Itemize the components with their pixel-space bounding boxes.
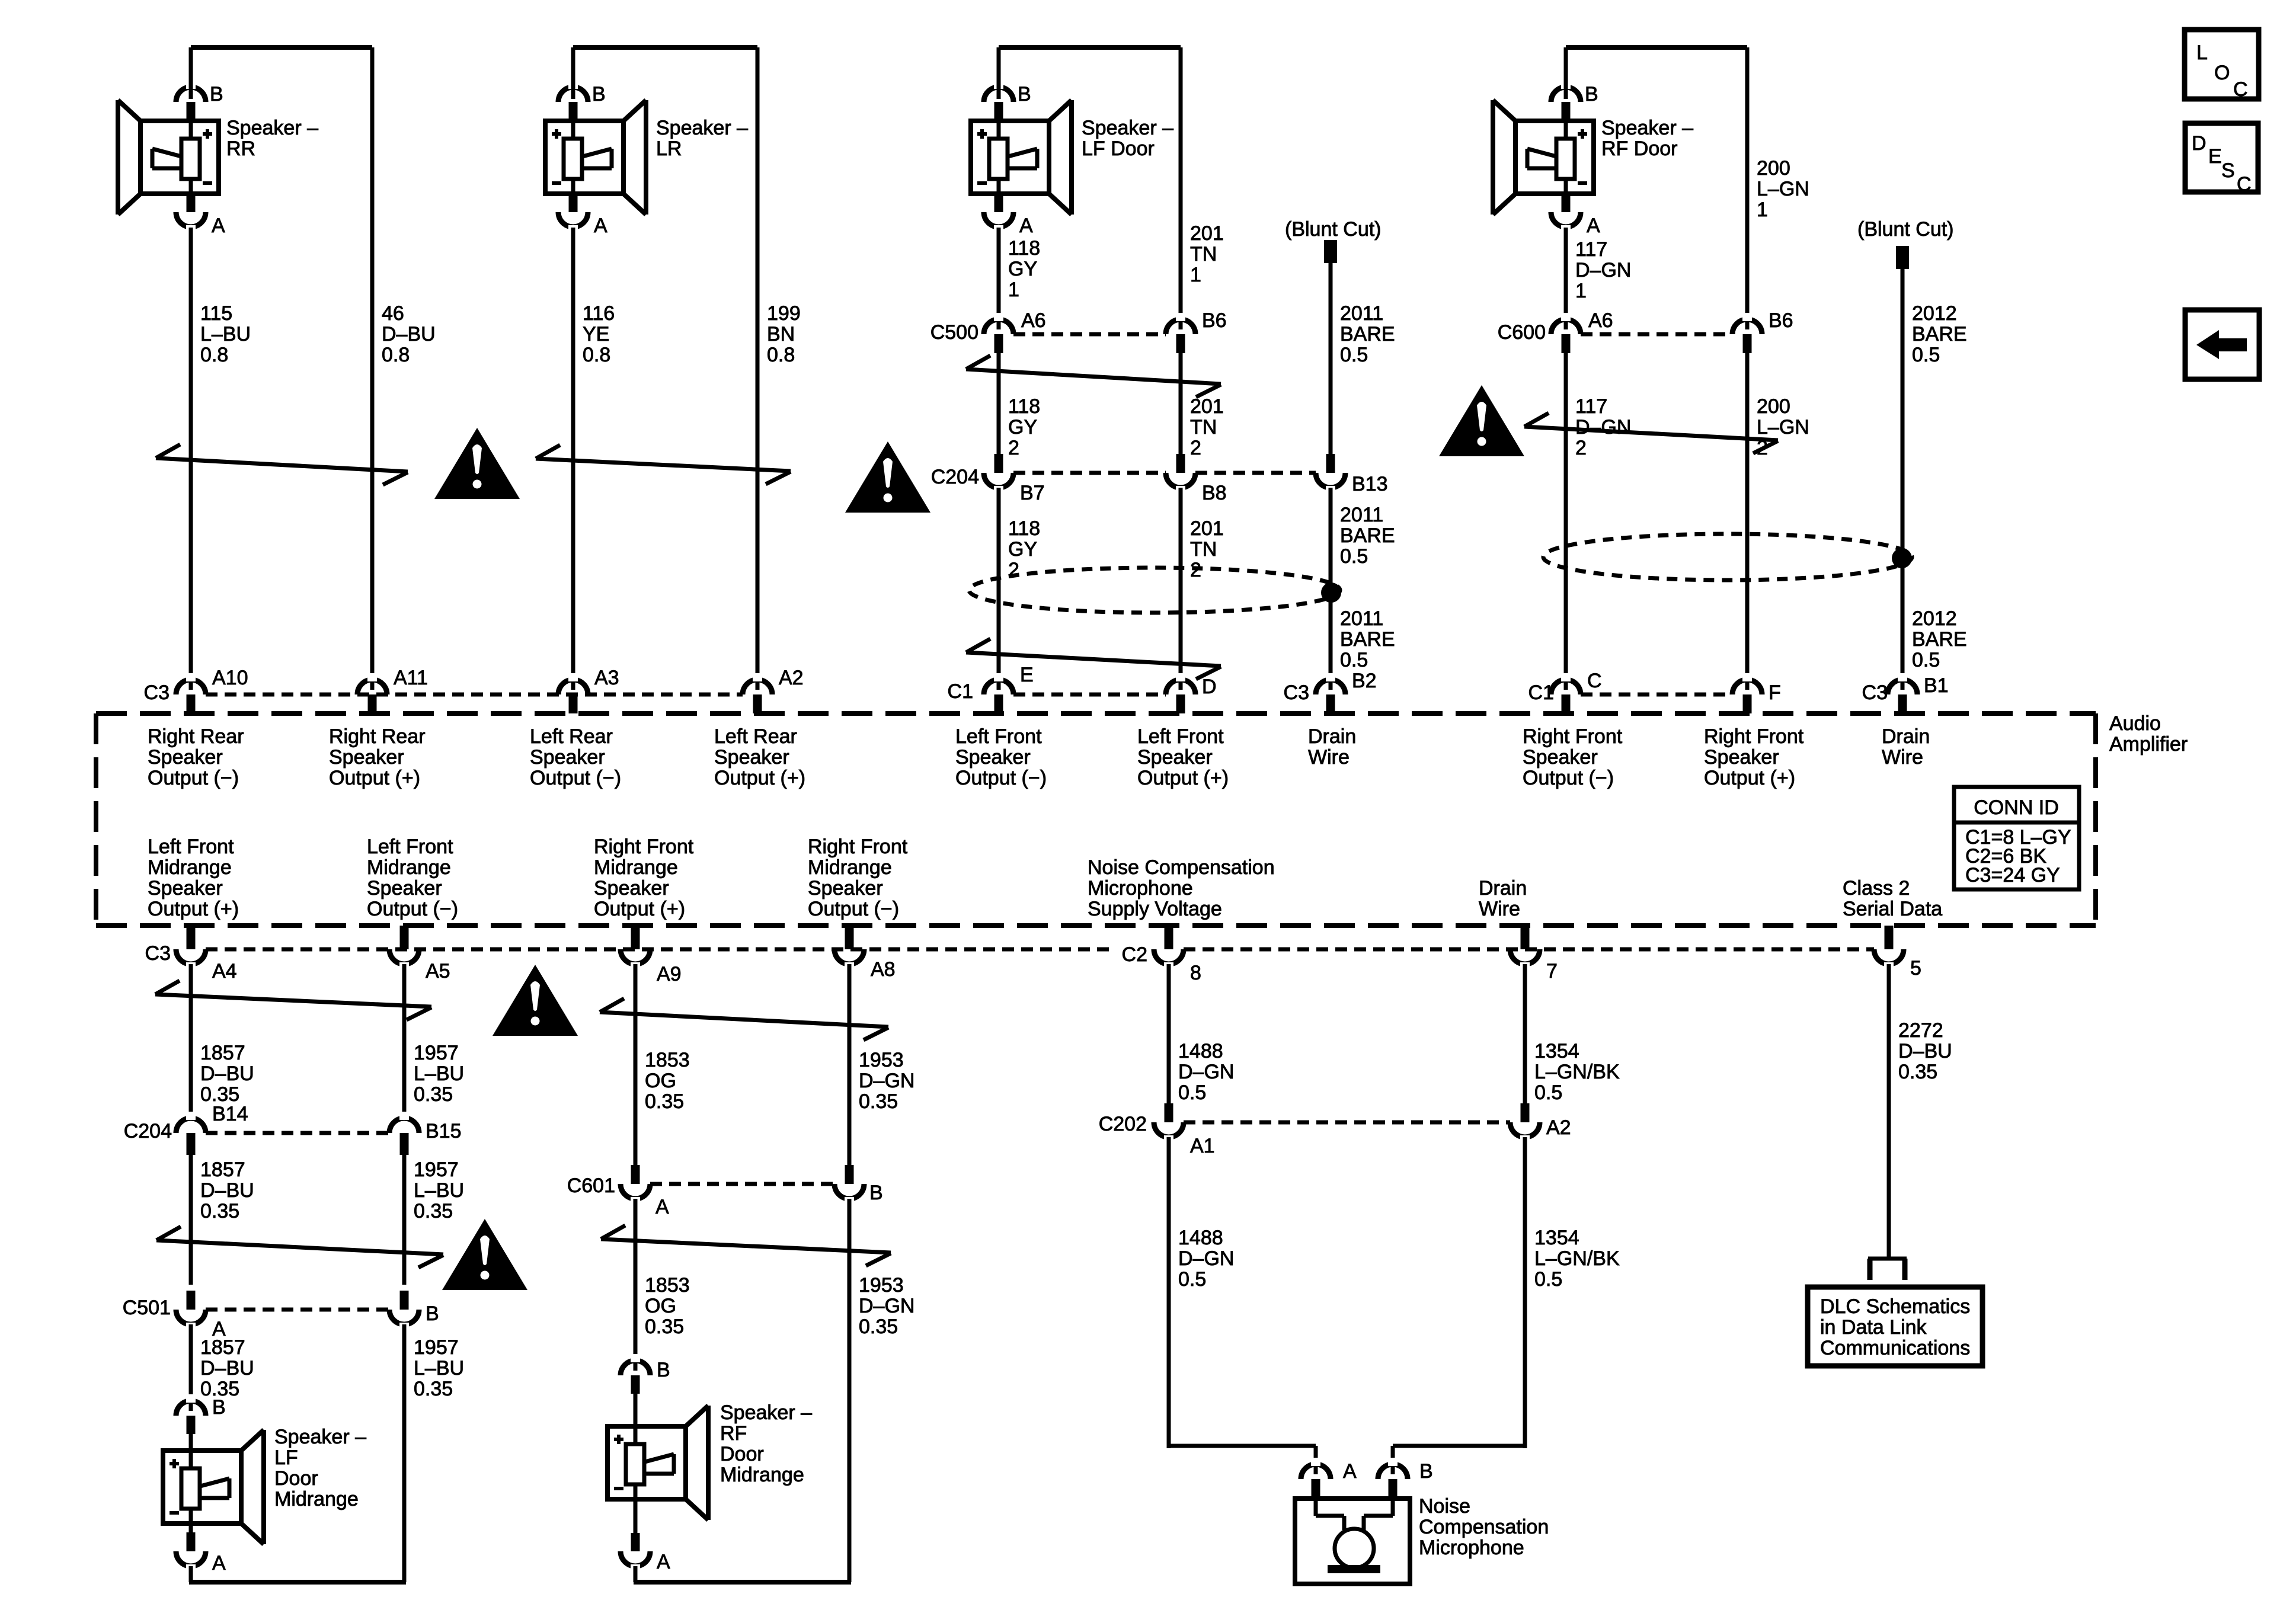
svg-text:C: C xyxy=(2237,173,2252,196)
svg-text:Output (−): Output (−) xyxy=(148,767,239,789)
svg-text:200: 200 xyxy=(1757,395,1790,418)
svg-text:RR: RR xyxy=(226,137,255,160)
svg-text:0.35: 0.35 xyxy=(859,1315,898,1338)
svg-text:Speaker: Speaker xyxy=(530,746,605,769)
svg-text:C3: C3 xyxy=(145,942,171,965)
svg-text:GY: GY xyxy=(1008,258,1037,280)
svg-text:0.35: 0.35 xyxy=(414,1200,453,1222)
svg-text:B: B xyxy=(592,83,606,105)
svg-text:A2: A2 xyxy=(779,667,804,689)
svg-text:Door: Door xyxy=(274,1467,318,1490)
svg-text:BARE: BARE xyxy=(1912,323,1967,345)
svg-text:Speaker –: Speaker – xyxy=(656,117,748,139)
svg-text:Speaker: Speaker xyxy=(148,746,223,769)
svg-text:Speaker: Speaker xyxy=(1137,746,1213,769)
svg-text:0.5: 0.5 xyxy=(1912,344,1940,366)
svg-text:D–BU: D–BU xyxy=(200,1179,254,1202)
svg-text:0.35: 0.35 xyxy=(1898,1061,1937,1083)
svg-text:Right Front: Right Front xyxy=(808,836,908,858)
svg-text:GY: GY xyxy=(1008,416,1037,438)
svg-text:0.5: 0.5 xyxy=(1534,1081,1562,1104)
svg-text:Microphone: Microphone xyxy=(1088,877,1193,900)
svg-text:B6: B6 xyxy=(1202,309,1227,332)
svg-text:2011: 2011 xyxy=(1340,607,1383,630)
svg-text:0.35: 0.35 xyxy=(859,1090,898,1113)
svg-text:Speaker –: Speaker – xyxy=(1601,117,1693,139)
svg-text:L: L xyxy=(2196,41,2208,64)
svg-text:116: 116 xyxy=(583,302,615,325)
svg-text:Microphone: Microphone xyxy=(1419,1537,1524,1559)
svg-text:L–BU: L–BU xyxy=(200,323,251,345)
svg-text:0.35: 0.35 xyxy=(200,1200,239,1222)
svg-text:B13: B13 xyxy=(1352,473,1388,495)
svg-text:Serial Data: Serial Data xyxy=(1843,898,1942,920)
svg-text:46: 46 xyxy=(382,302,404,325)
svg-text:B: B xyxy=(1419,1460,1433,1483)
svg-text:D–BU: D–BU xyxy=(200,1062,254,1085)
svg-text:Noise: Noise xyxy=(1419,1495,1470,1518)
svg-text:BARE: BARE xyxy=(1340,524,1395,547)
svg-text:Speaker: Speaker xyxy=(1704,746,1779,769)
svg-text:O: O xyxy=(2214,62,2230,84)
svg-text:0.8: 0.8 xyxy=(382,344,410,366)
svg-text:2: 2 xyxy=(1757,437,1768,459)
svg-text:Output (+): Output (+) xyxy=(329,767,420,789)
svg-text:L–BU: L–BU xyxy=(414,1179,464,1202)
svg-text:Speaker –: Speaker – xyxy=(1082,117,1173,139)
svg-text:1354: 1354 xyxy=(1534,1227,1579,1249)
svg-text:Wire: Wire xyxy=(1308,746,1350,769)
svg-text:Output (−): Output (−) xyxy=(367,898,458,920)
svg-text:D–GN: D–GN xyxy=(1178,1061,1234,1083)
svg-text:1: 1 xyxy=(1757,199,1768,221)
svg-text:Drain: Drain xyxy=(1308,725,1356,748)
svg-text:200: 200 xyxy=(1757,157,1790,180)
svg-text:GY: GY xyxy=(1008,538,1037,561)
svg-text:Class 2: Class 2 xyxy=(1843,877,1910,900)
svg-text:A: A xyxy=(1343,1460,1357,1483)
svg-text:Midrange: Midrange xyxy=(148,856,232,879)
svg-text:B8: B8 xyxy=(1202,482,1227,504)
svg-text:C204: C204 xyxy=(124,1120,172,1142)
svg-text:201: 201 xyxy=(1190,517,1224,540)
svg-text:L–GN/BK: L–GN/BK xyxy=(1534,1247,1620,1270)
svg-text:Output (+): Output (+) xyxy=(1137,767,1229,789)
svg-text:Speaker: Speaker xyxy=(148,877,223,900)
svg-text:Left Front: Left Front xyxy=(1137,725,1224,748)
svg-text:Right Rear: Right Rear xyxy=(148,725,244,748)
svg-text:A: A xyxy=(212,215,225,237)
svg-text:OG: OG xyxy=(645,1070,676,1092)
svg-text:A: A xyxy=(1019,215,1033,237)
svg-text:A5: A5 xyxy=(426,960,450,982)
svg-text:B: B xyxy=(1585,83,1598,105)
svg-text:A10: A10 xyxy=(212,667,248,689)
svg-text:Output (+): Output (+) xyxy=(1704,767,1795,789)
svg-text:A6: A6 xyxy=(1588,309,1613,332)
svg-text:0.5: 0.5 xyxy=(1534,1268,1562,1291)
svg-text:Output (−): Output (−) xyxy=(808,898,899,920)
svg-text:0.35: 0.35 xyxy=(645,1315,684,1338)
svg-text:B: B xyxy=(1018,83,1031,105)
svg-text:Door: Door xyxy=(720,1443,764,1465)
svg-text:Midrange: Midrange xyxy=(274,1488,359,1510)
svg-text:1488: 1488 xyxy=(1178,1227,1223,1249)
svg-text:B: B xyxy=(426,1302,439,1325)
svg-text:Left Front: Left Front xyxy=(148,836,234,858)
svg-text:F: F xyxy=(1769,681,1781,704)
svg-text:L–GN: L–GN xyxy=(1757,178,1809,200)
svg-text:1354: 1354 xyxy=(1534,1040,1579,1062)
svg-text:201: 201 xyxy=(1190,222,1224,245)
svg-text:B: B xyxy=(210,83,223,105)
svg-text:1857: 1857 xyxy=(200,1158,245,1181)
svg-text:C3=24 GY: C3=24 GY xyxy=(1965,864,2060,886)
svg-text:1957: 1957 xyxy=(414,1042,459,1064)
svg-text:in Data Link: in Data Link xyxy=(1820,1316,1927,1339)
svg-text:D–GN: D–GN xyxy=(1575,259,1631,281)
svg-text:0.5: 0.5 xyxy=(1912,649,1940,671)
svg-text:D: D xyxy=(2192,132,2207,155)
svg-text:C2: C2 xyxy=(1122,943,1147,966)
svg-text:0.5: 0.5 xyxy=(1340,545,1368,568)
svg-text:L–GN: L–GN xyxy=(1757,416,1809,438)
svg-text:Supply Voltage: Supply Voltage xyxy=(1088,898,1222,920)
svg-text:Right Rear: Right Rear xyxy=(329,725,426,748)
svg-text:Speaker: Speaker xyxy=(714,746,789,769)
svg-text:Wire: Wire xyxy=(1882,746,1923,769)
svg-text:D–BU: D–BU xyxy=(382,323,436,345)
svg-text:Audio: Audio xyxy=(2109,712,2161,735)
svg-text:1853: 1853 xyxy=(645,1274,690,1297)
svg-text:Midrange: Midrange xyxy=(720,1464,804,1486)
svg-text:Output (−): Output (−) xyxy=(955,767,1047,789)
svg-text:C204: C204 xyxy=(931,466,979,488)
svg-text:TN: TN xyxy=(1190,243,1217,265)
svg-text:D–GN: D–GN xyxy=(859,1295,914,1317)
svg-text:Drain: Drain xyxy=(1882,725,1930,748)
svg-text:E: E xyxy=(1020,664,1034,686)
svg-text:C500: C500 xyxy=(930,321,978,344)
svg-text:C501: C501 xyxy=(123,1297,171,1319)
svg-text:1: 1 xyxy=(1008,279,1019,301)
svg-text:2: 2 xyxy=(1008,437,1019,459)
svg-text:Output (−): Output (−) xyxy=(530,767,621,789)
svg-text:D–GN: D–GN xyxy=(1575,416,1631,438)
svg-text:C3: C3 xyxy=(144,681,170,704)
svg-text:B: B xyxy=(657,1359,670,1381)
svg-text:0.5: 0.5 xyxy=(1178,1268,1206,1291)
svg-text:BARE: BARE xyxy=(1912,628,1967,651)
svg-text:Communications: Communications xyxy=(1820,1337,1970,1359)
svg-text:2012: 2012 xyxy=(1912,302,1957,325)
svg-text:0.35: 0.35 xyxy=(414,1378,453,1400)
svg-text:Left Rear: Left Rear xyxy=(714,725,797,748)
svg-text:0.8: 0.8 xyxy=(583,344,610,366)
svg-text:C601: C601 xyxy=(567,1174,615,1197)
svg-text:Speaker –: Speaker – xyxy=(226,117,318,139)
svg-text:1857: 1857 xyxy=(200,1042,245,1064)
svg-text:2012: 2012 xyxy=(1912,607,1957,630)
svg-text:Output (+): Output (+) xyxy=(594,898,685,920)
svg-text:BARE: BARE xyxy=(1340,323,1395,345)
svg-text:BARE: BARE xyxy=(1340,628,1395,651)
svg-text:117: 117 xyxy=(1575,395,1607,418)
svg-text:(Blunt Cut): (Blunt Cut) xyxy=(1857,218,1954,241)
svg-text:0.35: 0.35 xyxy=(414,1083,453,1106)
svg-text:0.5: 0.5 xyxy=(1178,1081,1206,1104)
svg-text:1488: 1488 xyxy=(1178,1040,1223,1062)
svg-text:B1: B1 xyxy=(1924,674,1949,697)
svg-text:Compensation: Compensation xyxy=(1419,1516,1549,1538)
svg-text:B7: B7 xyxy=(1020,482,1045,504)
svg-text:B15: B15 xyxy=(426,1120,462,1142)
svg-text:Left Rear: Left Rear xyxy=(530,725,613,748)
svg-text:C: C xyxy=(1587,670,1602,692)
svg-text:C1: C1 xyxy=(948,680,973,703)
svg-text:Drain: Drain xyxy=(1479,877,1527,900)
svg-text:A9: A9 xyxy=(657,963,682,985)
svg-text:1957: 1957 xyxy=(414,1336,459,1359)
svg-text:Wire: Wire xyxy=(1479,898,1520,920)
svg-text:Right Front: Right Front xyxy=(1704,725,1804,748)
svg-text:A3: A3 xyxy=(594,667,619,689)
svg-text:Speaker: Speaker xyxy=(1523,746,1598,769)
svg-text:B2: B2 xyxy=(1352,670,1377,692)
svg-text:C3: C3 xyxy=(1862,681,1888,704)
svg-text:Right Front: Right Front xyxy=(594,836,694,858)
svg-text:OG: OG xyxy=(645,1295,676,1317)
svg-text:YE: YE xyxy=(583,323,609,345)
svg-text:7: 7 xyxy=(1546,960,1558,982)
svg-text:B14: B14 xyxy=(212,1103,248,1125)
svg-text:Amplifier: Amplifier xyxy=(2109,733,2188,756)
svg-text:Speaker –: Speaker – xyxy=(720,1401,812,1424)
svg-text:1853: 1853 xyxy=(645,1049,690,1071)
svg-text:A4: A4 xyxy=(212,960,237,982)
svg-text:Left Front: Left Front xyxy=(955,725,1042,748)
svg-text:L–GN/BK: L–GN/BK xyxy=(1534,1061,1620,1083)
svg-text:117: 117 xyxy=(1575,238,1607,261)
svg-text:0.8: 0.8 xyxy=(767,344,795,366)
svg-text:B: B xyxy=(212,1396,226,1419)
svg-text:Midrange: Midrange xyxy=(808,856,892,879)
svg-text:Midrange: Midrange xyxy=(594,856,678,879)
svg-text:Output (−): Output (−) xyxy=(1523,767,1614,789)
svg-text:Speaker: Speaker xyxy=(594,877,669,900)
svg-text:BN: BN xyxy=(767,323,795,345)
svg-text:D: D xyxy=(1202,676,1217,698)
svg-text:D–GN: D–GN xyxy=(859,1070,914,1092)
svg-text:2272: 2272 xyxy=(1898,1019,1943,1042)
svg-text:CONN ID: CONN ID xyxy=(1974,796,2059,819)
svg-text:1953: 1953 xyxy=(859,1049,904,1071)
svg-text:A2: A2 xyxy=(1546,1116,1571,1139)
svg-text:B6: B6 xyxy=(1769,309,1793,332)
svg-text:TN: TN xyxy=(1190,416,1217,438)
svg-text:A1: A1 xyxy=(1190,1135,1215,1157)
svg-text:B: B xyxy=(869,1182,883,1204)
svg-text:0.5: 0.5 xyxy=(1340,344,1368,366)
svg-text:Noise Compensation: Noise Compensation xyxy=(1088,856,1275,879)
svg-text:1: 1 xyxy=(1575,280,1587,302)
svg-text:A: A xyxy=(657,1551,670,1573)
svg-text:A: A xyxy=(655,1196,669,1218)
svg-text:RF: RF xyxy=(720,1422,747,1445)
svg-text:2011: 2011 xyxy=(1340,302,1383,325)
svg-text:L–BU: L–BU xyxy=(414,1357,464,1379)
svg-text:Speaker: Speaker xyxy=(808,877,883,900)
svg-text:C3: C3 xyxy=(1284,681,1309,704)
svg-text:Output (+): Output (+) xyxy=(148,898,239,920)
svg-text:D–GN: D–GN xyxy=(1178,1247,1234,1270)
svg-text:LF: LF xyxy=(274,1446,298,1469)
svg-text:TN: TN xyxy=(1190,538,1217,561)
svg-text:8: 8 xyxy=(1190,962,1201,984)
svg-text:A: A xyxy=(1587,215,1600,237)
svg-text:Speaker: Speaker xyxy=(955,746,1031,769)
svg-text:Left Front: Left Front xyxy=(367,836,453,858)
svg-text:A6: A6 xyxy=(1021,309,1046,332)
svg-text:Output (+): Output (+) xyxy=(714,767,805,789)
svg-text:LR: LR xyxy=(656,137,682,160)
svg-text:Speaker: Speaker xyxy=(367,877,442,900)
svg-text:118: 118 xyxy=(1008,237,1040,260)
svg-text:0.5: 0.5 xyxy=(1340,649,1368,671)
svg-text:RF Door: RF Door xyxy=(1601,137,1677,160)
svg-text:A11: A11 xyxy=(394,667,428,689)
svg-text:L–BU: L–BU xyxy=(414,1062,464,1085)
svg-text:199: 199 xyxy=(767,302,801,325)
svg-text:2: 2 xyxy=(1190,437,1201,459)
svg-text:1953: 1953 xyxy=(859,1274,904,1297)
svg-text:D–BU: D–BU xyxy=(200,1357,254,1379)
svg-text:C: C xyxy=(2233,78,2248,101)
svg-text:A: A xyxy=(212,1552,226,1574)
svg-text:Speaker –: Speaker – xyxy=(274,1426,366,1448)
svg-text:A: A xyxy=(594,215,607,237)
svg-text:E: E xyxy=(2208,145,2222,168)
svg-text:LF Door: LF Door xyxy=(1082,137,1155,160)
svg-text:S: S xyxy=(2221,159,2235,182)
svg-text:2: 2 xyxy=(1575,437,1587,459)
svg-text:C202: C202 xyxy=(1099,1113,1147,1135)
svg-text:118: 118 xyxy=(1008,517,1040,540)
svg-text:1: 1 xyxy=(1190,264,1201,286)
svg-text:0.35: 0.35 xyxy=(645,1090,684,1113)
svg-text:Midrange: Midrange xyxy=(367,856,451,879)
svg-text:A8: A8 xyxy=(871,958,896,981)
svg-text:5: 5 xyxy=(1910,957,1921,980)
svg-text:115: 115 xyxy=(200,302,232,325)
svg-text:0.8: 0.8 xyxy=(200,344,228,366)
svg-text:1857: 1857 xyxy=(200,1336,245,1359)
svg-text:D–BU: D–BU xyxy=(1898,1040,1952,1062)
svg-text:DLC Schematics: DLC Schematics xyxy=(1820,1295,1970,1318)
svg-text:201: 201 xyxy=(1190,395,1224,418)
svg-text:Right Front: Right Front xyxy=(1523,725,1623,748)
svg-text:118: 118 xyxy=(1008,395,1040,418)
svg-text:C1: C1 xyxy=(1528,681,1554,704)
svg-text:2011: 2011 xyxy=(1340,504,1383,526)
svg-text:Speaker: Speaker xyxy=(329,746,404,769)
svg-text:1957: 1957 xyxy=(414,1158,459,1181)
svg-text:(Blunt Cut): (Blunt Cut) xyxy=(1285,218,1382,241)
svg-text:C600: C600 xyxy=(1498,321,1546,344)
